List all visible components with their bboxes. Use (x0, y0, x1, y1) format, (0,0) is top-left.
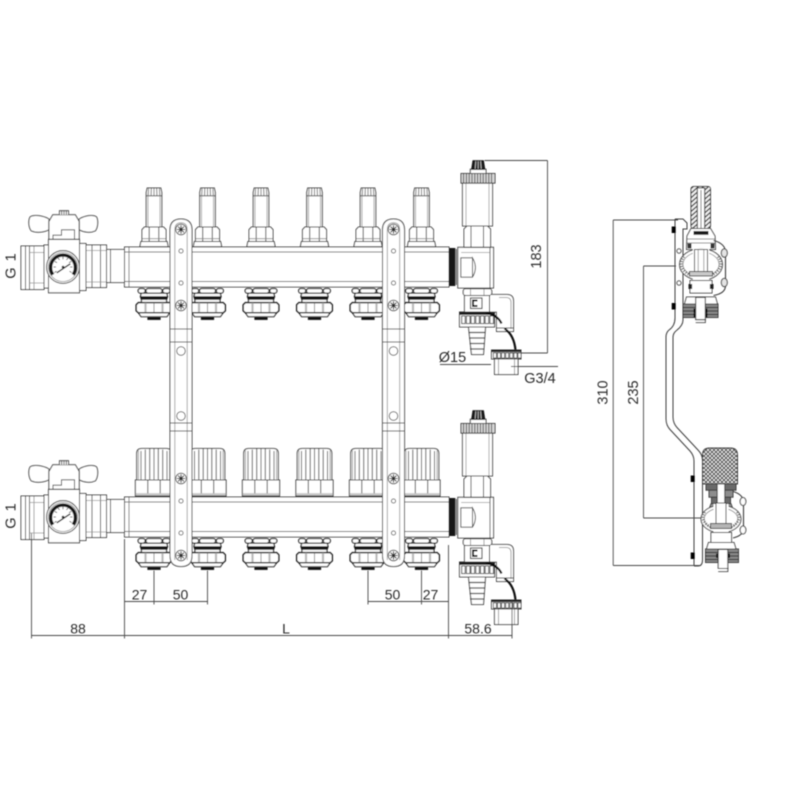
svg-text:50: 50 (173, 587, 189, 603)
svg-text:27: 27 (423, 587, 439, 603)
svg-text:235: 235 (626, 380, 642, 404)
svg-text:G3/4: G3/4 (524, 371, 555, 387)
svg-text:183: 183 (529, 244, 545, 268)
svg-text:G 1: G 1 (4, 252, 20, 278)
svg-text:88: 88 (70, 621, 86, 637)
svg-text:G 1: G 1 (4, 502, 20, 528)
svg-text:50: 50 (385, 587, 401, 603)
svg-text:L: L (282, 621, 290, 637)
svg-text:58.6: 58.6 (464, 621, 491, 637)
svg-text:310: 310 (596, 380, 612, 404)
svg-text:Ø15: Ø15 (439, 350, 466, 366)
svg-text:27: 27 (132, 587, 148, 603)
